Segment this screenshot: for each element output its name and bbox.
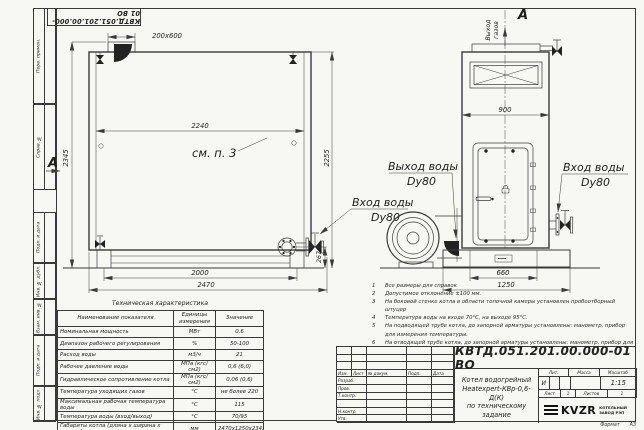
side-inlet-label: Вход воды	[563, 161, 625, 174]
front-view: 200x600 2240 2345 А 2255 см. п. 3 267 20…	[46, 32, 414, 293]
lock-icon	[502, 185, 509, 193]
base-frame	[443, 250, 570, 267]
side-view: 900	[380, 8, 628, 293]
kvzr-logo-caption: КОТЕЛЬНЫЙ ЗАВОД РЭП	[599, 406, 627, 415]
view-arrow-label-front: А	[47, 156, 58, 171]
row-empty	[337, 400, 367, 408]
format-label: Формат	[600, 423, 619, 428]
table-row: Температура уходящих газов°Сне более 220	[58, 387, 264, 398]
note-item: 4Температура воды на входе 70°С, на выхо…	[372, 314, 634, 322]
flue-damper	[114, 44, 132, 62]
dim-2000: 2000	[191, 269, 208, 277]
col-podp: Подп.	[407, 370, 432, 378]
drawing-sheet: Перв. примен. Справ. № Подп. и дата Инв.…	[0, 0, 644, 430]
tech-col-value: Значение	[216, 311, 264, 327]
lifting-lug-right	[289, 52, 297, 64]
sheets-label: Листов	[576, 390, 608, 398]
lit-value: И	[539, 377, 550, 390]
dim-2470: 2470	[197, 281, 214, 289]
dim-2240: 2240	[191, 122, 208, 130]
side-inlet-dn: Dy80	[581, 176, 610, 189]
table-row: Диапазон рабочего регулирования%50-100	[58, 338, 264, 349]
lifting-lug-left	[96, 52, 104, 64]
note-item: 3На боковой стенке котла в области топоч…	[372, 298, 634, 314]
note-item: 5На подводящей трубе котла, до запорной …	[372, 322, 634, 338]
lit-header: Лит.	[539, 369, 569, 377]
dim-267: 267	[316, 251, 323, 263]
dim-2255: 2255	[323, 149, 331, 166]
tech-table-title: Техническая характеристика	[57, 298, 263, 310]
table-row: Номинальная мощностьМВт0,6	[58, 327, 264, 338]
row-razrab: Разраб.	[337, 377, 367, 385]
row-prov: Пров.	[337, 385, 367, 393]
scale-value: 1:15	[601, 377, 637, 390]
title-block-revision-grid: Изм. Лист № докум. Подп. Дата Разраб. Пр…	[337, 347, 454, 423]
company-logo: KVZR КОТЕЛЬНЫЙ ЗАВОД РЭП	[539, 398, 637, 423]
outlet-dn: Dy80	[407, 175, 436, 188]
col-izm: Изм.	[337, 370, 352, 378]
table-row: Максимальная рабочая температура воды°С1…	[58, 398, 264, 411]
format-value: А3	[630, 423, 636, 428]
drain-valve	[95, 236, 105, 250]
tech-col-unit: Единицы измерения	[174, 311, 216, 327]
row-tkontr: Т.контр.	[337, 393, 367, 401]
title-block-right: Лит. Масса Масштаб И 1:15 Лист 1 Листов …	[538, 369, 637, 423]
row-nkontr: Н.контр.	[337, 408, 367, 416]
tech-col-name: Наименование показателя	[58, 311, 174, 327]
drawing-title: Котел водогрейный Heatexpert-КВр-0,6-Д(К…	[454, 369, 538, 423]
boiler-door	[473, 143, 536, 245]
sheet-value: 1	[561, 390, 576, 398]
drawing-title-line2: Heatexpert-КВр-0,6-Д(К)	[455, 385, 538, 403]
table-row: Расход водым3/ч21	[58, 349, 264, 360]
dim-flue: 200x600	[152, 32, 182, 40]
view-arrow-label-side: А	[517, 8, 528, 23]
col-list: Лист	[352, 370, 367, 378]
kvzr-logo-text: KVZR	[561, 404, 596, 417]
collar-valve	[540, 40, 562, 56]
blower-fan	[387, 208, 462, 268]
dim-2345: 2345	[62, 149, 70, 166]
format-footer: Формат А3	[545, 423, 636, 428]
dim-900: 900	[499, 106, 512, 114]
note-item: 2Допустимое отклонение ±100 мм.	[372, 290, 634, 298]
col-dokum: № докум.	[367, 370, 407, 378]
side-inlet-fitting	[549, 211, 573, 236]
kvzr-logo-mark-icon	[544, 405, 558, 416]
table-row: Габариты котла (длина х ширина х высота)…	[58, 422, 264, 430]
title-block: Изм. Лист № докум. Подп. Дата Разраб. Пр…	[336, 346, 636, 422]
outlet-label: Выход воды	[388, 160, 458, 173]
front-inlet-label: Вход воды	[352, 196, 414, 209]
gas-outlet-label-2: газов	[493, 21, 500, 39]
sheets-value: 1	[608, 390, 637, 398]
tech-table: Наименование показателя Единицы измерени…	[57, 310, 264, 430]
note-item: 1Все размеры для справок	[372, 282, 634, 290]
front-inlet-dn: Dy80	[371, 211, 400, 224]
duct-damper	[444, 241, 459, 256]
see-note-label: см. п. 3	[192, 146, 236, 160]
mass-value	[571, 377, 601, 390]
doc-number: КВТД.051.201.00.000-01 ВО	[454, 347, 637, 369]
gas-outlet-label-1: Выход	[485, 20, 492, 41]
col-data: Дата	[432, 370, 454, 378]
table-row: Температура воды (вход/выход)°С70/95	[58, 411, 264, 422]
table-row: Рабочее давление водыМПа (кгс/см2)0,6 (6…	[58, 361, 264, 374]
row-utv: Утв.	[337, 415, 367, 423]
table-row: Гидравлическое сопротивление котлаМПа (к…	[58, 374, 264, 387]
tech-characteristics: Техническая характеристика Наименование …	[57, 298, 263, 430]
scale-header: Масштаб	[600, 369, 637, 377]
drawing-title-line1: Котел водогрейный	[455, 376, 538, 385]
dim-660: 660	[497, 269, 510, 277]
sheet-label: Лист	[539, 390, 561, 398]
drawing-title-line3: по техническому задание	[455, 402, 538, 420]
mass-header: Масса	[569, 369, 599, 377]
